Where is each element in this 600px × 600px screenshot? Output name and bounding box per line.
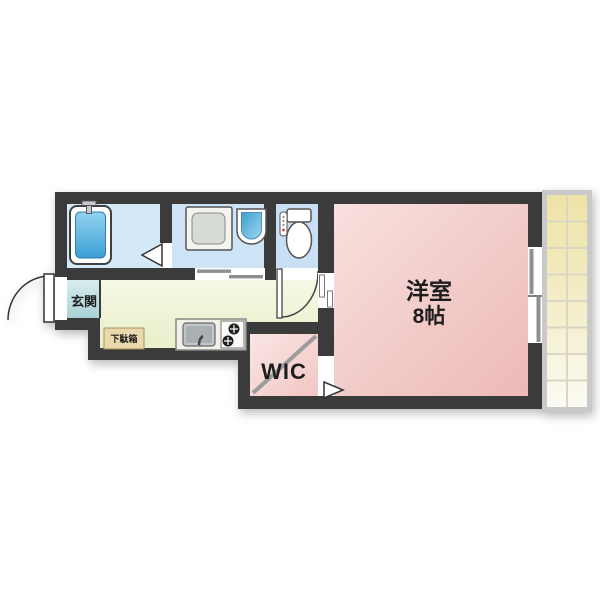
kitchen-room-door-panel-1: [320, 275, 325, 297]
entrance-door-opening: [55, 277, 67, 320]
balcony-window-sash-1: [530, 249, 534, 294]
toilet-bowl: [287, 222, 312, 258]
toilet-door-leaf: [277, 269, 282, 318]
washing-machine: [186, 207, 232, 250]
washing-machine-drum: [192, 213, 225, 244]
bathtub-basin: [76, 212, 106, 258]
toilet-tank: [287, 209, 311, 222]
entrance-door-leaf: [44, 274, 54, 322]
floorplan-page: 下駄箱 玄関 WIC 洋室 8帖: [0, 0, 600, 600]
balcony: [542, 190, 592, 412]
bathtub: [70, 201, 111, 264]
western-room-label: 洋室: [406, 278, 452, 304]
kitchen-room-door-panel-2: [328, 291, 333, 307]
wic-label: WIC: [261, 359, 307, 384]
vanity-sink: [237, 209, 266, 244]
wall-top: [55, 192, 542, 204]
washroom-sliding-door-panel-1: [197, 270, 231, 273]
wall-bottom: [238, 396, 542, 409]
vanity-bowl: [242, 213, 262, 240]
entrance-label: 玄関: [71, 294, 97, 309]
shoe-cabinet: 下駄箱: [104, 328, 144, 349]
kitchen-counter: [176, 319, 246, 350]
western-room-size-label: 8帖: [413, 305, 446, 328]
toilet-control-panel-icon: [280, 212, 287, 236]
washroom-sliding-door-panel-2: [229, 275, 263, 278]
floorplan-canvas: 下駄箱 玄関 WIC 洋室 8帖: [0, 0, 600, 600]
shoe-cabinet-label: 下駄箱: [110, 333, 137, 344]
balcony-window-sash-2: [537, 297, 541, 342]
